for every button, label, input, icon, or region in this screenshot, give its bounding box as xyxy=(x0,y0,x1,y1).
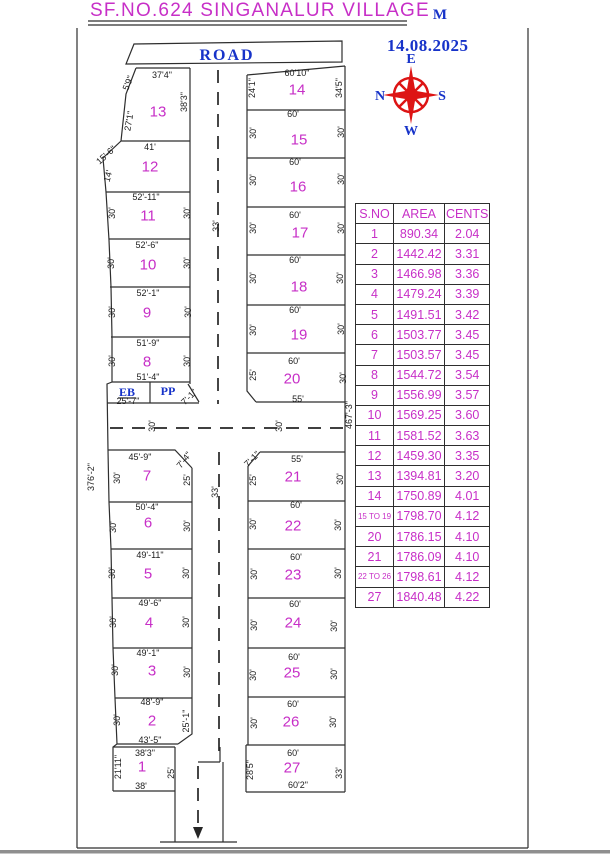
compass-center xyxy=(408,92,414,98)
sno-cell: 27 xyxy=(356,587,394,607)
table-row: 121459.303.35 xyxy=(356,446,490,466)
sno-cell: 22 TO 26 xyxy=(356,567,394,587)
cents-cell: 3.42 xyxy=(445,304,490,324)
area-cell: 1503.77 xyxy=(394,325,445,345)
plot-number: 22 xyxy=(285,518,302,535)
dimension-label: 30' xyxy=(248,174,258,186)
table-row: 21442.423.31 xyxy=(356,244,490,264)
table-row: 201786.154.10 xyxy=(356,527,490,547)
dimension-label: 30' xyxy=(248,127,258,139)
dimension-label: 25' xyxy=(248,369,258,381)
dimension-label: 14' xyxy=(102,169,115,183)
plot-number: 21 xyxy=(285,469,302,486)
area-cell: 1798.61 xyxy=(394,567,445,587)
cents-cell: 3.45 xyxy=(445,345,490,365)
dimension-label: 30' xyxy=(328,716,338,728)
dimension-label: 60' xyxy=(288,652,300,662)
dimension-label: 60' xyxy=(287,699,299,709)
table-row: 81544.723.54 xyxy=(356,365,490,385)
dimension-label: 30' xyxy=(182,207,192,219)
dimension-label: 49'-11" xyxy=(136,550,163,560)
table-row: 41479.243.39 xyxy=(356,284,490,304)
cents-cell: 4.10 xyxy=(445,527,490,547)
area-cell: 1786.09 xyxy=(394,547,445,567)
dimension-label: 21'11" xyxy=(113,755,123,779)
cents-cell: 4.12 xyxy=(445,567,490,587)
cents-cell: 3.39 xyxy=(445,284,490,304)
dimension-label: 60' xyxy=(287,109,299,119)
sno-cell: 10 xyxy=(356,405,394,425)
dimension-label: 60' xyxy=(289,255,301,265)
plot-number: 19 xyxy=(291,327,308,344)
cents-cell: 3.35 xyxy=(445,446,490,466)
dimension-label: 49'-1" xyxy=(137,648,160,658)
dimension-label: 30' xyxy=(329,620,339,632)
table-row: 1890.342.04 xyxy=(356,224,490,244)
sno-cell: 6 xyxy=(356,325,394,345)
dimension-label: 33' xyxy=(334,767,344,779)
dimension-label: 51'-4" xyxy=(137,372,160,382)
dimension-label: 376'-2" xyxy=(86,463,96,491)
area-cell: 1479.24 xyxy=(394,284,445,304)
sno-cell: 11 xyxy=(356,426,394,446)
dimension-label: 33' xyxy=(210,486,220,498)
sno-cell: 12 xyxy=(356,446,394,466)
dimension-label: 25' xyxy=(248,474,258,486)
compass-left-label: N xyxy=(375,89,385,104)
dimension-label: 60' xyxy=(289,305,301,315)
sno-cell: 1 xyxy=(356,224,394,244)
dimension-label: 30' xyxy=(329,668,339,680)
plot-number: 5 xyxy=(144,566,152,583)
road-label: ROAD xyxy=(199,47,254,64)
dimension-label: 30' xyxy=(335,272,345,284)
area-cell: 1544.72 xyxy=(394,365,445,385)
dimension-label: 30' xyxy=(107,567,117,579)
dimension-label: 467'-3" xyxy=(344,401,354,429)
sno-cell: 13 xyxy=(356,466,394,486)
table-row: 271840.484.22 xyxy=(356,587,490,607)
sno-cell: 8 xyxy=(356,365,394,385)
dimension-label: 38'3" xyxy=(135,748,155,758)
area-cell: 1840.48 xyxy=(394,587,445,607)
plot-number: 3 xyxy=(148,663,156,680)
table-row: 51491.513.42 xyxy=(356,304,490,324)
plot-layout-drawing: E N S W SF.NO.624 SINGANALUR VILLAGE M 1… xyxy=(0,0,610,860)
dimension-label: 60' xyxy=(289,599,301,609)
area-cell: 1442.42 xyxy=(394,244,445,264)
plot-number: 14 xyxy=(289,82,306,99)
table-header: S.NO xyxy=(356,204,394,224)
cents-cell: 4.12 xyxy=(445,506,490,526)
sno-cell: 21 xyxy=(356,547,394,567)
area-cell: 1466.98 xyxy=(394,264,445,284)
plot-number: 11 xyxy=(140,208,156,225)
cents-cell: 3.54 xyxy=(445,365,490,385)
plot-number: 24 xyxy=(285,615,302,632)
table-row: 91556.993.57 xyxy=(356,385,490,405)
plot-number: 4 xyxy=(145,615,153,632)
table-row: 71503.573.45 xyxy=(356,345,490,365)
table-header: CENTS xyxy=(445,204,490,224)
dimension-label: 25' xyxy=(166,767,176,779)
dimension-label: 30' xyxy=(333,567,343,579)
dimension-label: 30' xyxy=(336,323,346,335)
table-row: 141750.894.01 xyxy=(356,486,490,506)
table-row: 211786.094.10 xyxy=(356,547,490,567)
sno-cell: 5 xyxy=(356,304,394,324)
plot-number: 9 xyxy=(143,305,151,322)
compass-rose: E N S W xyxy=(375,52,446,139)
plot-number: 26 xyxy=(283,714,300,731)
dimension-label: 30' xyxy=(107,207,117,219)
table-row: 131394.813.20 xyxy=(356,466,490,486)
plot-number: 1 xyxy=(138,759,146,776)
dimension-label: 45'-9" xyxy=(129,452,152,462)
dimension-label: 30' xyxy=(182,355,192,367)
plot-number: 6 xyxy=(144,515,152,532)
plot-number: 13 xyxy=(150,104,167,121)
area-cell: 1569.25 xyxy=(394,405,445,425)
sno-cell: 3 xyxy=(356,264,394,284)
dimension-label: 51'-9" xyxy=(137,338,160,348)
dimension-label: 30' xyxy=(248,669,258,681)
dimension-label: 50'-4" xyxy=(136,502,159,512)
dimension-label: 27'1" xyxy=(122,110,135,131)
cents-cell: 4.01 xyxy=(445,486,490,506)
dimension-label: 30' xyxy=(181,567,191,579)
plot-number: 2 xyxy=(148,713,156,730)
dimension-label: 30' xyxy=(108,521,118,533)
dimension-label: 60' xyxy=(290,500,302,510)
dimension-label: 30' xyxy=(181,616,191,628)
dimension-label: 60' xyxy=(289,210,301,220)
corner-mark: M xyxy=(433,7,447,23)
dimension-label: 30' xyxy=(336,222,346,234)
cents-cell: 4.10 xyxy=(445,547,490,567)
plot-number: 25 xyxy=(284,665,301,682)
dimension-label: 49'-6" xyxy=(139,598,162,608)
plot-number: 27 xyxy=(284,760,301,777)
dimension-label: 30' xyxy=(183,306,193,318)
sno-cell: 4 xyxy=(356,284,394,304)
dimension-label: 30' xyxy=(336,126,346,138)
plot-number: 7 xyxy=(143,468,151,485)
dimension-label: 30' xyxy=(336,173,346,185)
road-centerline-dashed xyxy=(110,70,344,828)
dimension-label: 25'-1" xyxy=(181,710,191,733)
dimension-label: 30' xyxy=(338,372,348,384)
dimension-label: 48'-9" xyxy=(141,697,164,707)
dimension-label: 30' xyxy=(248,222,258,234)
table-row: 101569.253.60 xyxy=(356,405,490,425)
area-cell: 1394.81 xyxy=(394,466,445,486)
dimension-label: 30' xyxy=(274,420,284,432)
dimension-label: 30' xyxy=(182,520,192,532)
plot-number: 20 xyxy=(284,371,301,388)
compass-right-label: S xyxy=(438,89,446,104)
dimension-label: 30' xyxy=(112,472,122,484)
dimension-label: 25'-7" xyxy=(117,396,140,406)
area-cell: 1798.70 xyxy=(394,506,445,526)
table-header: AREA xyxy=(394,204,445,224)
sno-cell: 14 xyxy=(356,486,394,506)
plot-number: 8 xyxy=(143,354,151,371)
dimension-label: 30' xyxy=(147,420,157,432)
area-table: S.NOAREACENTS1890.342.0421442.423.313146… xyxy=(355,203,490,608)
dimension-label: 34'5" xyxy=(334,78,344,98)
dimension-label: 30' xyxy=(249,619,259,631)
area-cell: 1459.30 xyxy=(394,446,445,466)
cents-cell: 3.20 xyxy=(445,466,490,486)
dimension-label: 30' xyxy=(249,717,259,729)
dimension-label: 30' xyxy=(333,519,343,531)
table-row: 61503.773.45 xyxy=(356,325,490,345)
table-row: 31466.983.36 xyxy=(356,264,490,284)
dimension-label: 30' xyxy=(182,666,192,678)
dimension-label: 38' xyxy=(135,781,147,791)
cents-cell: 3.57 xyxy=(445,385,490,405)
area-cell: 1581.52 xyxy=(394,426,445,446)
cents-cell: 3.63 xyxy=(445,426,490,446)
plot-number: 23 xyxy=(285,567,302,584)
plot-number: 16 xyxy=(290,179,307,196)
area-cell: 1786.15 xyxy=(394,527,445,547)
cents-cell: 3.31 xyxy=(445,244,490,264)
dimension-label: 30' xyxy=(182,257,192,269)
dimension-label: 7'-1" xyxy=(242,449,262,469)
dimension-label: 41' xyxy=(144,142,156,152)
sheet-bottom-edge xyxy=(0,850,610,854)
dimension-label: 30' xyxy=(107,306,117,318)
table-header-row: S.NOAREACENTS xyxy=(356,204,490,224)
survey-sheet: E N S W SF.NO.624 SINGANALUR VILLAGE M 1… xyxy=(0,0,610,860)
pp-label: PP xyxy=(161,384,176,398)
dimension-label: 60' xyxy=(290,552,302,562)
dimension-label: 30' xyxy=(112,714,122,726)
plot-number: 17 xyxy=(292,225,309,242)
plot-number: 15 xyxy=(291,132,308,149)
dimension-label: 30' xyxy=(110,664,120,676)
dimension-label: 55' xyxy=(292,394,304,404)
dimension-label: 30' xyxy=(108,616,118,628)
dimension-label: 30' xyxy=(249,568,259,580)
dimension-label: 33' xyxy=(211,220,221,232)
area-cell: 890.34 xyxy=(394,224,445,244)
cents-cell: 2.04 xyxy=(445,224,490,244)
dimension-label: 37'4" xyxy=(152,70,172,80)
dimension-label: 24'1" xyxy=(247,78,257,98)
dimension-label: 60'2" xyxy=(288,780,308,790)
area-cell: 1491.51 xyxy=(394,304,445,324)
area-cell: 1503.57 xyxy=(394,345,445,365)
page-title: SF.NO.624 SINGANALUR VILLAGE xyxy=(90,0,430,21)
dimension-label: 60' xyxy=(287,748,299,758)
area-cell: 1750.89 xyxy=(394,486,445,506)
date-label: 14.08.2025 xyxy=(387,36,469,55)
dimension-label: 30' xyxy=(248,324,258,336)
dimension-label: 52'-11" xyxy=(132,192,159,202)
dimension-label: 7'-1" xyxy=(179,387,199,407)
area-cell: 1556.99 xyxy=(394,385,445,405)
dimension-label: 30' xyxy=(335,473,345,485)
sno-cell: 20 xyxy=(356,527,394,547)
plot-number: 18 xyxy=(291,279,308,296)
dimension-label: 28'5" xyxy=(245,760,255,780)
dimension-label: 30' xyxy=(106,257,116,269)
dimension-label: 52'-1" xyxy=(137,288,160,298)
cents-cell: 4.22 xyxy=(445,587,490,607)
dimension-label: 60'10" xyxy=(285,68,310,78)
sno-cell: 7 xyxy=(356,345,394,365)
plot-number: 12 xyxy=(142,159,159,176)
table-row: 22 TO 261798.614.12 xyxy=(356,567,490,587)
dimension-label: 30' xyxy=(248,518,258,530)
sno-cell: 15 TO 19 xyxy=(356,506,394,526)
table-row: 15 TO 191798.704.12 xyxy=(356,506,490,526)
dimension-label: 60' xyxy=(288,356,300,366)
dimension-label: 38'3" xyxy=(179,92,189,112)
dimension-label: 60' xyxy=(289,157,301,167)
sno-cell: 9 xyxy=(356,385,394,405)
road-arrow-head xyxy=(193,827,203,839)
dimension-label: 43'-5" xyxy=(139,735,162,745)
cents-cell: 3.36 xyxy=(445,264,490,284)
dimension-label: 25' xyxy=(182,474,192,486)
sno-cell: 2 xyxy=(356,244,394,264)
compass-bottom-label: W xyxy=(404,124,418,139)
cents-cell: 3.60 xyxy=(445,405,490,425)
dimension-label: 30' xyxy=(107,355,117,367)
dimension-label: 30' xyxy=(248,272,258,284)
table-row: 111581.523.63 xyxy=(356,426,490,446)
cents-cell: 3.45 xyxy=(445,325,490,345)
dimension-label: 55' xyxy=(291,454,303,464)
dimension-label: 52'-6" xyxy=(136,240,159,250)
plot-number: 10 xyxy=(140,257,157,274)
